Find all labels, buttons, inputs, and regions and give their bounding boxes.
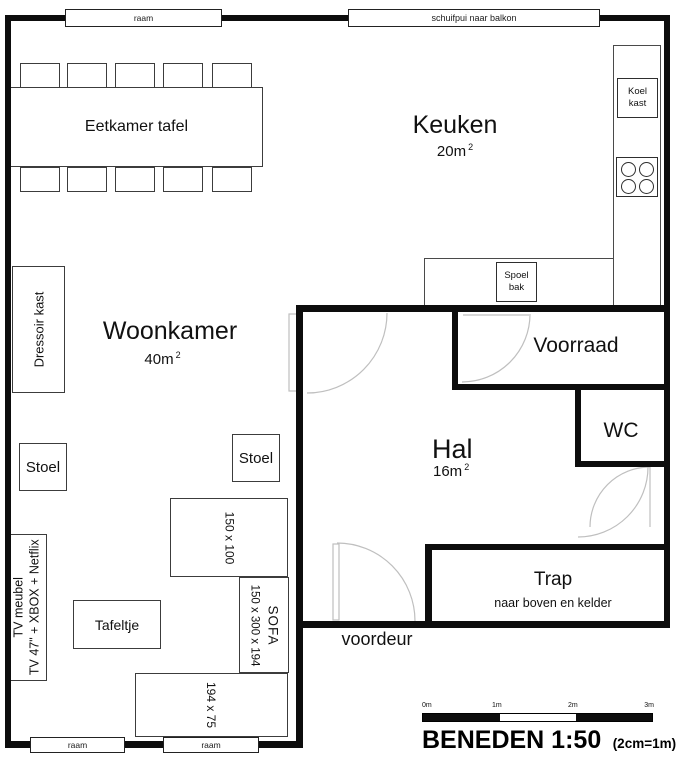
front-door-label: voordeur (337, 629, 417, 650)
room-area-keuken: 20m2 (390, 142, 520, 160)
dining-chair (20, 63, 60, 88)
wall-voorraad-bottom (452, 384, 670, 390)
dining-chair (163, 167, 203, 192)
chair-right: Stoel (232, 434, 280, 482)
window-bottom-left: raam (30, 737, 125, 753)
dining-chair (163, 63, 203, 88)
sink: Spoel bak (496, 262, 537, 302)
sofa-dims: 150 x 300 x 194 (247, 584, 263, 666)
tv-devices-label: TV 47" + XBOX + Netflix (27, 540, 43, 676)
dining-chair (67, 63, 107, 88)
dining-chair (212, 63, 252, 88)
wall-hal-bottom (296, 621, 670, 628)
burner-icon (639, 179, 654, 194)
door-arc-wc (578, 467, 648, 537)
chair-left: Stoel (19, 443, 67, 491)
scale-segment-black (423, 714, 500, 721)
room-label-woonkamer: Woonkamer (95, 317, 245, 346)
room-area-hal: 16m2 (433, 462, 469, 480)
door-arc-woonkamer-hal (307, 313, 387, 393)
wall-trap-top (425, 544, 670, 550)
window-top-label: raam (134, 13, 153, 23)
chair-left-label: Stoel (26, 459, 60, 476)
plan-scale-note: (2cm=1m) (613, 736, 676, 751)
tv-cabinet-label: TV meubel (11, 540, 27, 676)
wall-voorraad-left (452, 305, 458, 390)
room-label-voorraad: Voorraad (520, 334, 632, 358)
scale-tick-3m: 3m (644, 702, 654, 709)
wall-hal-left (296, 305, 303, 748)
window-balcony-slider: schuifpui naar balkon (348, 9, 600, 27)
sofa-seat-dims: 194 x 75 (204, 682, 218, 728)
door-arc-hal-rear (590, 467, 650, 527)
scale-bar: 0m 1m 2m 3m BENEDEN 1:50 (2cm=1m) (422, 702, 654, 762)
dressoir-cabinet: Dressoir kast (12, 266, 65, 393)
window-top: raam (65, 9, 222, 27)
dining-chair (20, 167, 60, 192)
dressoir-label: Dressoir kast (31, 292, 46, 368)
room-label-keuken: Keuken (390, 111, 520, 140)
tv-cabinet: TV meubel TV 47" + XBOX + Netflix (7, 534, 47, 681)
side-table-label: Tafeltje (95, 617, 139, 633)
scale-segment-white (500, 714, 576, 721)
door-leaf-voordeur (333, 544, 339, 620)
wall-wc-left (575, 384, 581, 467)
dining-table-label: Eetkamer tafel (85, 118, 188, 136)
dining-chair (67, 167, 107, 192)
scale-tick-1m: 1m (492, 702, 502, 709)
burner-icon (639, 162, 654, 177)
scale-segment-black (576, 714, 652, 721)
sofa-body: SOFA 150 x 300 x 194 (239, 577, 289, 673)
dining-chair (115, 63, 155, 88)
window-bottom-left-label: raam (68, 740, 87, 750)
wall-outer-right (664, 15, 670, 628)
burner-icon (621, 162, 636, 177)
burner-icon (621, 179, 636, 194)
sofa-label: SOFA (263, 584, 282, 666)
scale-bar-segments (422, 713, 653, 722)
stove (616, 157, 658, 197)
sofa-chaise: 150 x 100 (170, 498, 288, 577)
plan-title: BENEDEN 1:50 (422, 726, 601, 754)
fridge: Koel kast (617, 78, 658, 118)
room-label-trap: Trap (503, 569, 603, 591)
dining-chair (115, 167, 155, 192)
window-bottom-right: raam (163, 737, 259, 753)
room-label-hal: Hal (432, 434, 473, 465)
room-label-wc: WC (590, 419, 652, 443)
wall-wc-bottom (575, 461, 670, 467)
floor-plan: Eetkamer tafel Dressoir kast Stoel Stoel… (0, 0, 679, 768)
chair-right-label: Stoel (239, 450, 273, 467)
fridge-label: Koel kast (618, 86, 657, 110)
plan-title-row: BENEDEN 1:50 (2cm=1m) (422, 726, 676, 755)
sofa-chaise-dims: 150 x 100 (222, 511, 236, 564)
room-note-trap: naar boven en kelder (478, 596, 628, 610)
wall-outer-left (5, 15, 11, 748)
dining-chair (212, 167, 252, 192)
wall-keuken-hal (296, 305, 670, 312)
dining-table: Eetkamer tafel (10, 87, 263, 167)
wall-trap-left (425, 544, 432, 628)
side-table: Tafeltje (73, 600, 161, 649)
scale-tick-2m: 2m (568, 702, 578, 709)
window-balcony-label: schuifpui naar balkon (431, 13, 516, 23)
sofa-seat: 194 x 75 (135, 673, 288, 737)
sink-label: Spoel bak (497, 270, 536, 294)
window-bottom-right-label: raam (201, 740, 220, 750)
room-area-woonkamer: 40m2 (90, 350, 235, 368)
door-arc-voordeur (337, 543, 415, 621)
scale-tick-0m: 0m (422, 702, 432, 709)
